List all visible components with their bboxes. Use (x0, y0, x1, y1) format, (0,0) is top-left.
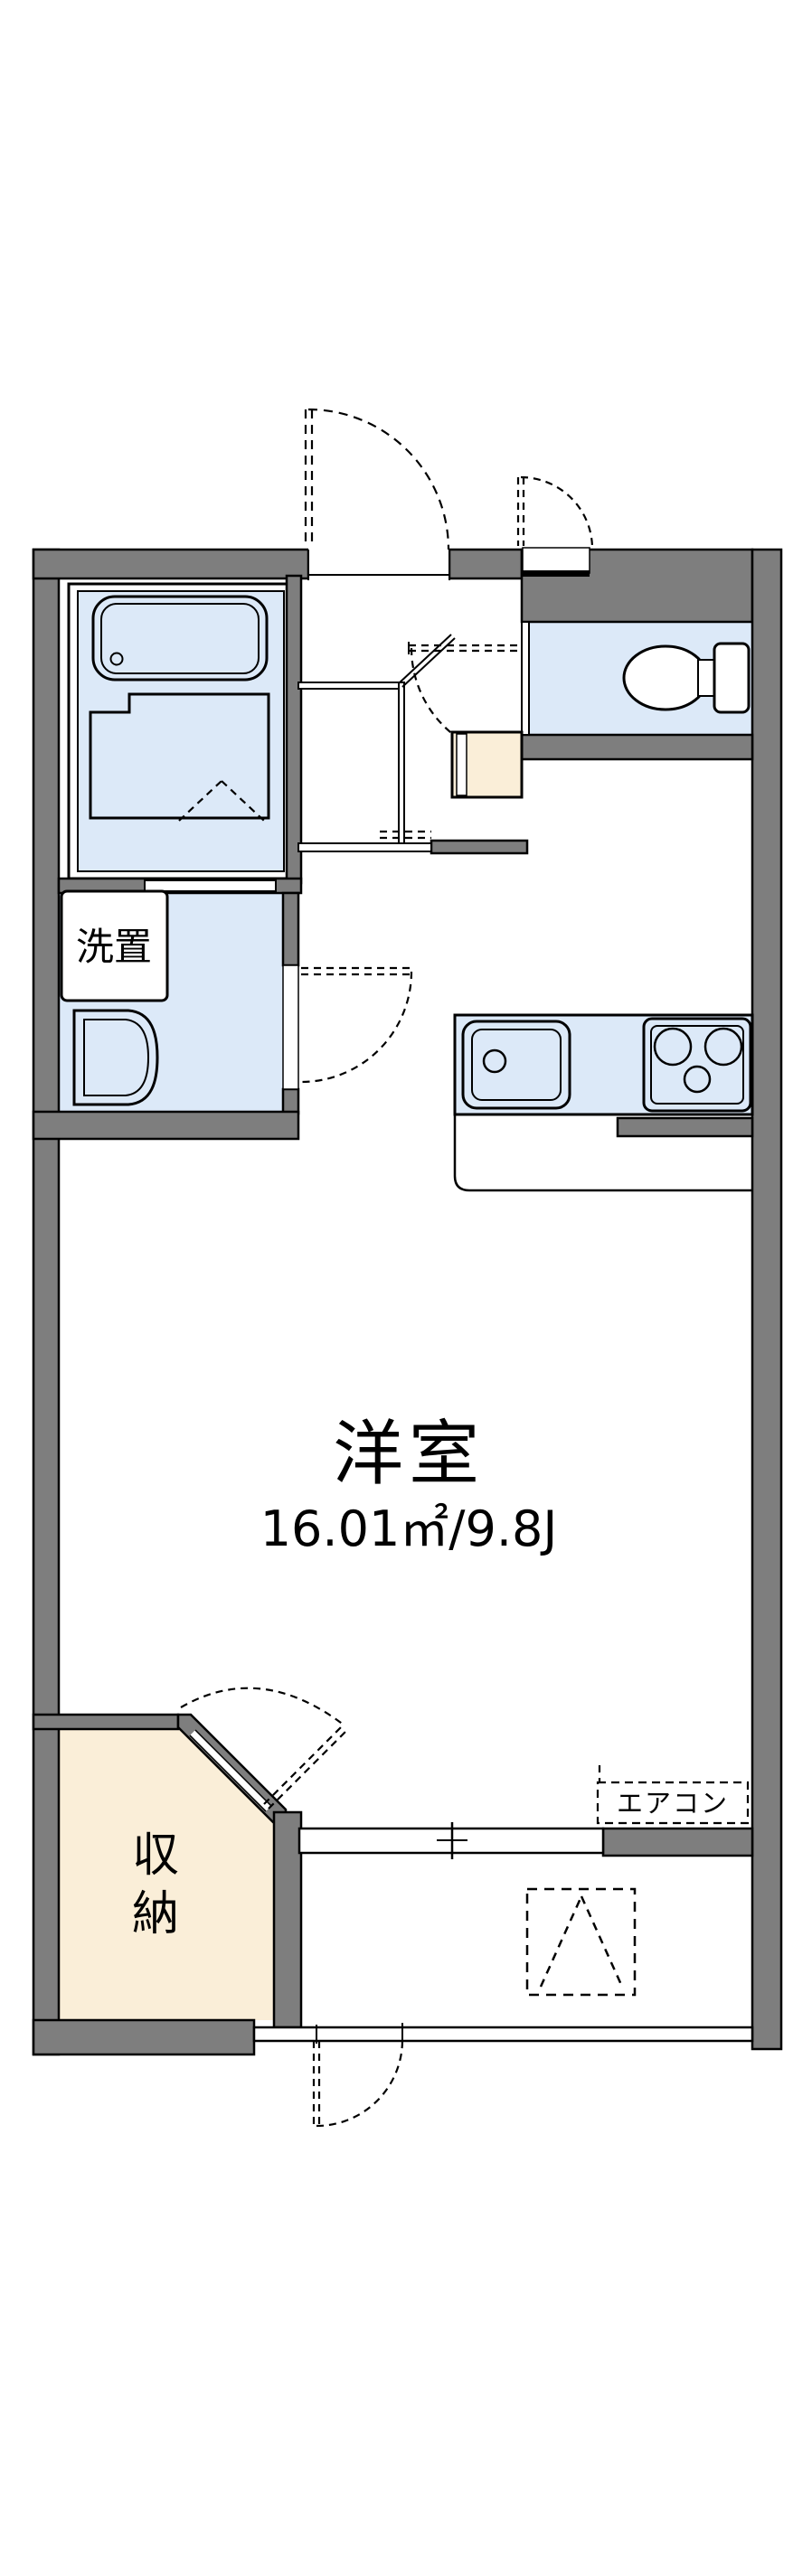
washroom-door-opening (283, 965, 298, 1089)
toilet-window-sill (523, 570, 590, 577)
storage-label-char2: 納 (132, 1887, 179, 1941)
wall-hall-stub (431, 841, 527, 853)
room-balcony-window (299, 1822, 603, 1859)
wall-storage-bottom (33, 2020, 254, 2054)
toilet-tank (714, 644, 749, 712)
floorplan-drawing: 洗置 洋室 16.01㎡/9.8J 収 納 (0, 0, 812, 2576)
wash-basin-inner (84, 1020, 148, 1095)
wall-kitchen-stub (618, 1118, 752, 1136)
wall-right (752, 550, 781, 2049)
bathroom (69, 584, 291, 879)
wall-storage-top (33, 1715, 178, 1729)
background (0, 0, 812, 2576)
hall-room-boundary (298, 843, 431, 851)
shoe-cabinet-door-line (457, 734, 467, 795)
wall-storage-right-column (274, 1812, 301, 2027)
main-room-area: 16.01㎡/9.8J (260, 1500, 558, 1557)
wall-left (33, 550, 59, 2054)
wall-top-mid (449, 550, 522, 578)
wall-bathroom-right-column (287, 576, 301, 883)
bathtub-inner (101, 604, 259, 673)
wall-room-bottom-right (603, 1829, 752, 1856)
storage-label-char1: 収 (132, 1829, 179, 1883)
washer-label: 洗置 (76, 925, 152, 969)
aircon-label: エアコン (617, 1788, 729, 1819)
wall-washroom-right-lower (283, 1089, 298, 1114)
balcony-edge-rail (254, 2027, 752, 2041)
wall-washroom-right-upper (283, 893, 298, 965)
wall-top-left (33, 550, 308, 578)
toilet-bowl (624, 646, 707, 710)
bathroom-sliding-door (145, 880, 276, 891)
main-room-label: 洋室 (333, 1414, 485, 1495)
toilet-window-recess (523, 548, 590, 573)
floorplan-page: { "plan": { "main_room": { "label": "洋室"… (0, 0, 812, 2576)
washroom-front-partition-h (298, 682, 400, 689)
toilet-partition-left (522, 622, 529, 735)
washroom-front-partition-v (399, 682, 404, 843)
wall-washroom-bottom (33, 1112, 298, 1139)
wall-toilet-bottom (522, 735, 752, 759)
